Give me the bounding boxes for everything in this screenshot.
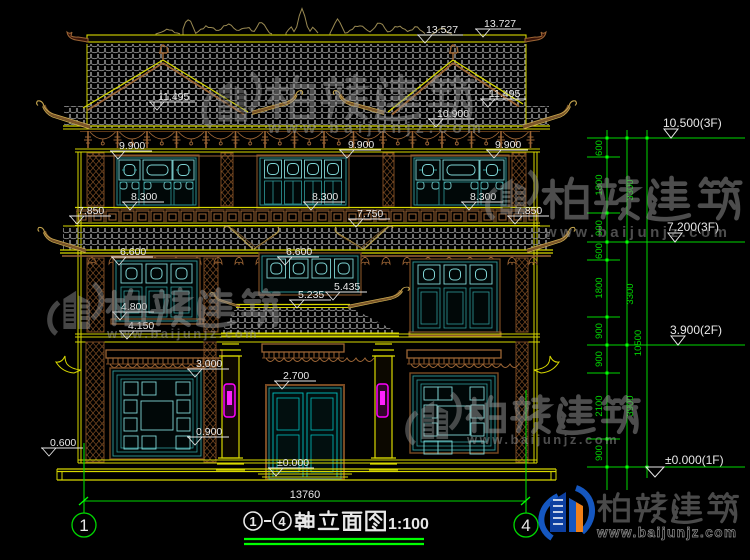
svg-text:600: 600 [594,243,605,259]
svg-text:±0.000: ±0.000 [277,457,309,469]
svg-text:13760: 13760 [290,489,321,501]
svg-text:0.600: 0.600 [50,437,76,449]
svg-text:3.900(2F): 3.900(2F) [670,323,722,337]
svg-text:1:100: 1:100 [388,516,429,533]
svg-text:3.000: 3.000 [196,358,222,370]
svg-text:2100: 2100 [594,395,605,416]
svg-text:1: 1 [249,514,256,529]
svg-text:7.850: 7.850 [78,205,104,217]
svg-text:900: 900 [594,445,605,461]
svg-text:11.495: 11.495 [489,88,520,100]
svg-text:10500: 10500 [633,330,644,356]
svg-text:±0.000(1F): ±0.000(1F) [665,453,724,467]
svg-text:www.baijunjz.com: www.baijunjz.com [544,224,730,241]
svg-text:0.900: 0.900 [196,426,222,438]
svg-text:13.727: 13.727 [484,18,516,30]
svg-text:www.baijunjz.com: www.baijunjz.com [267,120,486,137]
svg-text:www.baijunjz.com: www.baijunjz.com [106,326,259,341]
svg-text:900: 900 [594,351,605,367]
svg-text:1800: 1800 [594,277,605,298]
svg-text:900: 900 [594,323,605,339]
svg-text:8.300: 8.300 [312,191,338,203]
svg-text:9.900: 9.900 [119,140,145,152]
svg-text:600: 600 [594,140,605,156]
svg-text:5.235: 5.235 [298,289,324,301]
svg-text:5.435: 5.435 [334,281,360,293]
svg-text:3300: 3300 [625,283,636,304]
svg-text:13.527: 13.527 [426,24,458,36]
svg-text:1: 1 [79,516,88,535]
svg-text:www.baijunjz.com: www.baijunjz.com [596,525,738,540]
svg-text:4: 4 [278,514,286,529]
svg-text:6.600: 6.600 [286,246,312,258]
svg-text:9.900: 9.900 [495,139,521,151]
svg-text:www.baijunjz.com: www.baijunjz.com [466,432,619,447]
svg-text:10.500(3F): 10.500(3F) [663,116,722,130]
svg-text:2.700: 2.700 [283,370,309,382]
svg-text:7.750: 7.750 [357,208,383,220]
svg-text:6.600: 6.600 [120,246,146,258]
svg-text:9.900: 9.900 [348,139,374,151]
svg-text:11.495: 11.495 [158,91,189,103]
svg-text:8.300: 8.300 [131,191,157,203]
svg-text:4: 4 [521,516,530,535]
